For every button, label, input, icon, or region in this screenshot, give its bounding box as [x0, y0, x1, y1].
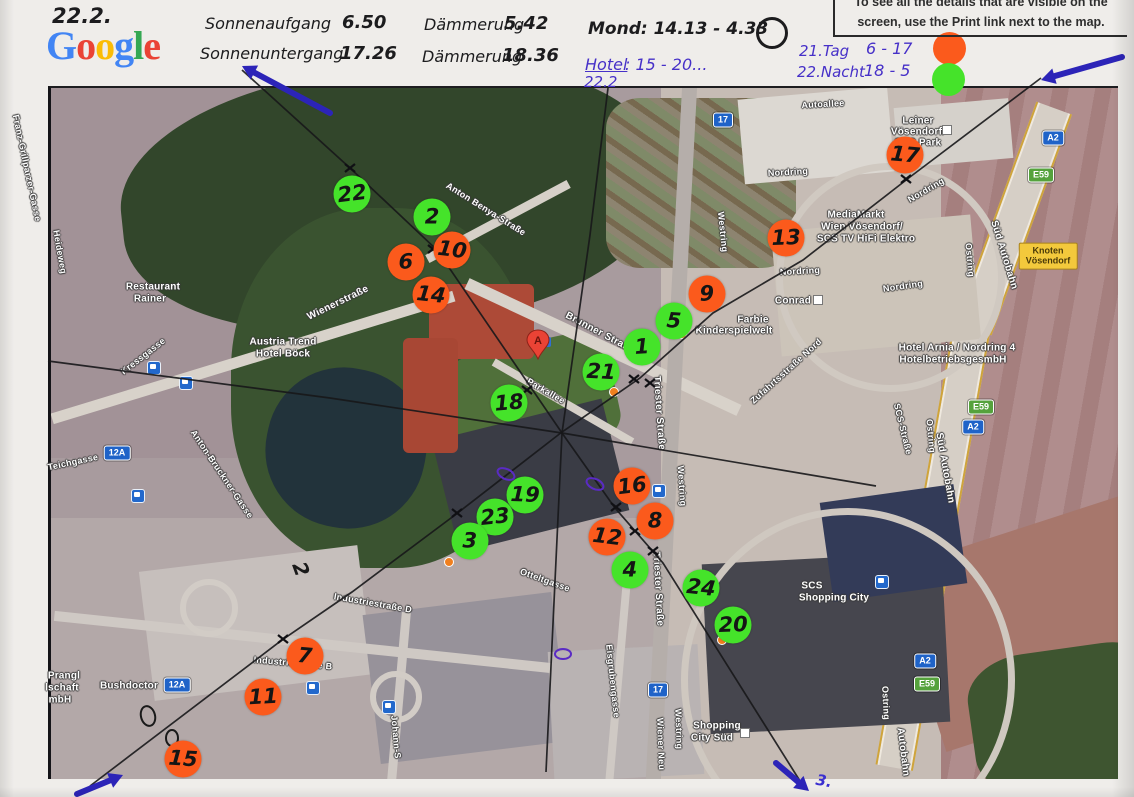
- map-marker-8-orange: 8: [637, 503, 674, 540]
- marker-number: 23: [479, 505, 510, 529]
- marker-number: 15: [168, 748, 199, 771]
- marker-number: 16: [616, 474, 648, 498]
- marker-number: 4: [623, 559, 638, 580]
- marker-number: 14: [415, 283, 446, 307]
- marker-number: 5: [666, 310, 682, 332]
- marker-number: 20: [718, 614, 748, 636]
- marker-number: 1: [634, 336, 650, 358]
- map-marker-1-green: 1: [624, 329, 661, 366]
- map-marker-6-orange: 6: [388, 244, 425, 281]
- map-marker-9-orange: 9: [689, 276, 726, 313]
- map-marker-7-orange: 7: [287, 638, 324, 675]
- marker-number: 24: [685, 576, 716, 600]
- map-marker-4-green: 4: [612, 552, 649, 589]
- map-marker-19-green: 19: [507, 477, 544, 514]
- map-marker-15-orange: 15: [165, 741, 202, 778]
- marker-number: 2: [425, 207, 440, 228]
- marker-number: 8: [648, 511, 663, 532]
- map-marker-20-green: 20: [715, 607, 752, 644]
- map-marker-16-orange: 16: [614, 468, 651, 505]
- map-marker-3-green: 3: [452, 523, 489, 560]
- marker-number: 18: [494, 391, 525, 414]
- map-marker-11-orange: 11: [245, 679, 282, 716]
- map-marker-13-orange: 13: [768, 220, 805, 257]
- marker-number: 17: [890, 143, 921, 166]
- map-marker-24-green: 24: [683, 570, 720, 607]
- marker-number: 22: [336, 182, 368, 206]
- map-marker-18-green: 18: [491, 385, 528, 422]
- map-marker-14-orange: 14: [413, 277, 450, 314]
- marker-number: 3: [463, 530, 478, 551]
- sticker-markers-layer: 222106141317951211819233168124242071115: [0, 0, 1134, 797]
- map-marker-22-green: 22: [334, 176, 371, 213]
- map-marker-12-orange: 12: [589, 519, 626, 556]
- handwritten-note-3: 3.: [814, 771, 833, 792]
- marker-number: 9: [699, 283, 715, 305]
- map-marker-10-orange: 10: [434, 232, 471, 269]
- map-marker-17-orange: 17: [887, 137, 924, 174]
- marker-number: 7: [297, 645, 313, 667]
- scanned-map-page: { "header":{ "date":"22.2.", "logo_lette…: [0, 0, 1134, 797]
- marker-number: 13: [771, 227, 801, 249]
- marker-number: 21: [586, 361, 616, 384]
- map-marker-5-green: 5: [656, 303, 693, 340]
- marker-number: 19: [510, 484, 540, 506]
- marker-number: 11: [248, 686, 278, 709]
- marker-number: 10: [436, 238, 468, 262]
- marker-number: 6: [399, 251, 414, 272]
- map-marker-21-green: 21: [583, 354, 620, 391]
- map-marker-2-green: 2: [414, 199, 451, 236]
- marker-number: 12: [591, 525, 623, 549]
